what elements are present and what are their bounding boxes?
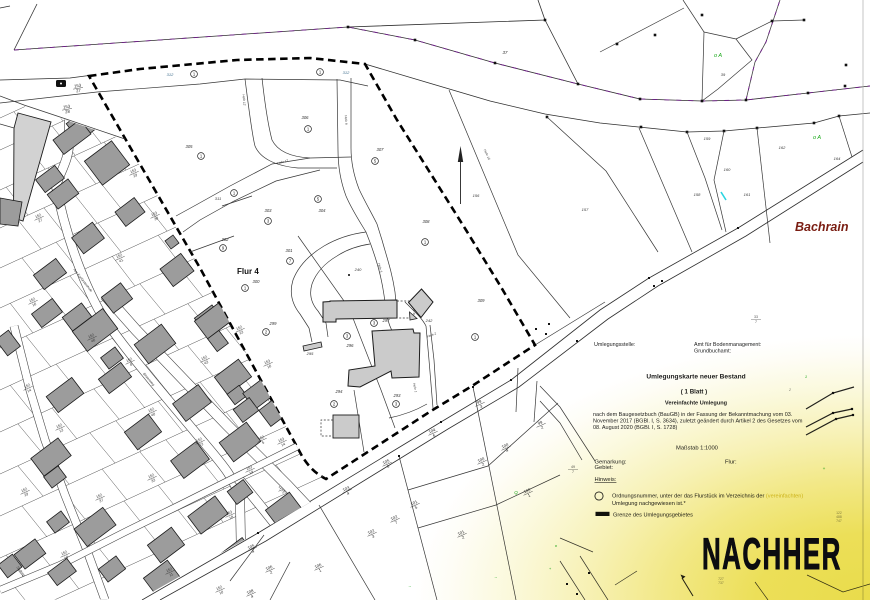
svg-text:305: 305 (186, 144, 194, 149)
svg-text:240: 240 (354, 267, 362, 272)
svg-text:311: 311 (215, 196, 221, 201)
svg-text:o A: o A (714, 53, 722, 59)
svg-text:304: 304 (319, 208, 327, 213)
svg-text:294: 294 (335, 389, 344, 394)
svg-text:Flur 4: Flur 4 (237, 267, 259, 276)
svg-text:Hefe 9: Hefe 9 (344, 115, 348, 125)
svg-text:299: 299 (269, 321, 278, 326)
svg-text:301: 301 (286, 248, 293, 253)
svg-text:37: 37 (502, 50, 508, 55)
svg-text:296: 296 (346, 343, 355, 348)
svg-text:302: 302 (222, 237, 230, 242)
svg-text:306: 306 (302, 115, 310, 120)
svg-text:39: 39 (721, 72, 726, 77)
svg-text:300: 300 (253, 279, 261, 284)
svg-text:NACHHER: NACHHER (702, 529, 842, 579)
svg-text:312: 312 (343, 70, 350, 75)
svg-text:295: 295 (306, 351, 314, 356)
svg-text:303: 303 (265, 208, 273, 213)
svg-text:312: 312 (167, 72, 174, 77)
